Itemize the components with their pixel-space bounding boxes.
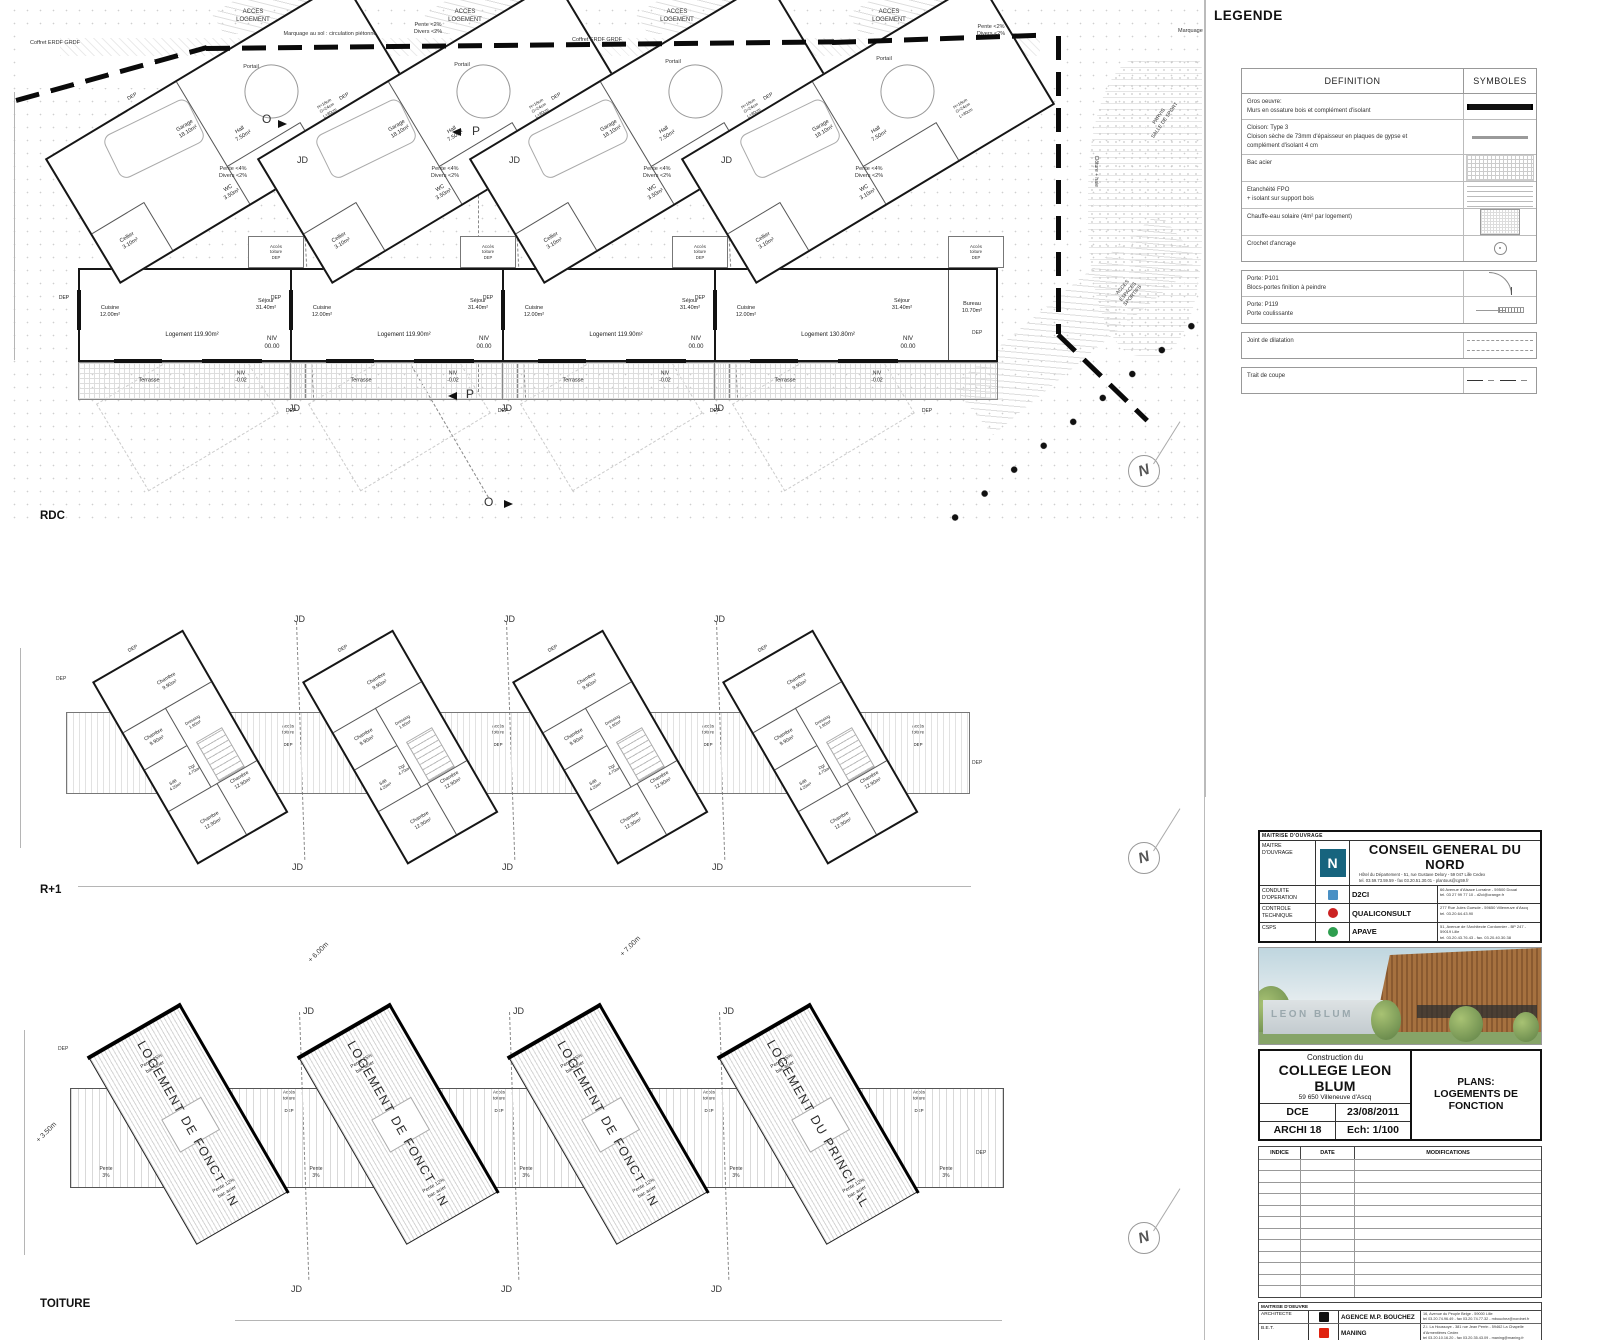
section-arrow-o-top (278, 120, 287, 128)
legend-row-5: Chauffe-eau solaire (4m² par logement) (1242, 208, 1536, 235)
wall-line (304, 202, 356, 234)
firm-address: Z.I. La Houssoye - 381 rue Jean Perrin -… (1421, 1324, 1541, 1340)
portail-4: Portail (876, 56, 892, 63)
jd-r1-top-2: JD (504, 614, 515, 626)
portail-1: Portail (243, 64, 259, 71)
terrasse-label: Terrasse (138, 377, 159, 384)
room-hall: Hall 7.50m² (655, 123, 677, 144)
dep-marker: DEP (126, 91, 138, 102)
rendered-sign-text: LEON BLUM (1271, 1009, 1353, 1020)
qualiconsult-logo (1316, 904, 1350, 922)
date-value: 23/08/2011 (1336, 1104, 1410, 1121)
plans-subject: LOGEMENTS DE FONCTION (1412, 1088, 1540, 1112)
indice-row (1259, 1170, 1541, 1182)
rdc-plan-title: RDC (40, 510, 65, 522)
indice-row (1259, 1193, 1541, 1205)
legend-definition: Joint de dilatation (1242, 333, 1464, 358)
indice-row (1259, 1262, 1541, 1274)
indice-row (1259, 1239, 1541, 1251)
level-marker: NIV 00.00 (264, 336, 279, 352)
jd-toit-bot-1: JD (291, 1284, 302, 1296)
roof-access-porch: Accès toiture DEP (248, 236, 304, 268)
room-cellier: Cellier 3.10m² (542, 231, 564, 252)
legend-symbol-joint-icon (1464, 333, 1536, 358)
window-bar (414, 359, 474, 363)
project-box: Construction du COLLEGE LEON BLUM 59 650… (1258, 1049, 1542, 1141)
jd-rdc-bot-3: JD (713, 403, 724, 415)
acces-logement-1: ACCES LOGEMENT (236, 9, 270, 25)
dep-toit-right: DEP (976, 1150, 986, 1157)
wall-line (935, 122, 959, 160)
wall-line (355, 745, 397, 770)
section-arrow-p-top (452, 128, 461, 136)
jd-r1-bot-3: JD (712, 862, 723, 874)
living-band: Cuisine 12.00m² Logement 119.90m² Séjour… (78, 268, 306, 362)
role-label: ARCHITECTE (1259, 1311, 1309, 1324)
d2ci-logo (1316, 886, 1350, 904)
room-degagement: Dgt 4.70m² (185, 761, 202, 777)
section-o-bot: O (484, 495, 493, 511)
room-chambre: Chambre 12.90m² (409, 810, 433, 832)
role-label: B.E.T. (1259, 1324, 1309, 1340)
north-arrow-r1: N (1128, 842, 1160, 874)
legend-symbol-hook-icon (1464, 236, 1536, 261)
indice-row (1259, 1205, 1541, 1217)
room-sejour: Séjour 31.40m² (892, 298, 912, 312)
jd-toit-top-3: JD (723, 1006, 734, 1018)
dep-marker: DEP (547, 644, 559, 655)
north-needle (1153, 808, 1180, 851)
roof-access-porch: Accès toiture DEP (460, 236, 516, 268)
oeuvre-row-1: ARCHITECTEAGENCE M.P. BOUCHEZ16, Avenue … (1259, 1311, 1541, 1325)
legend-definition: Chauffe-eau solaire (4m² par logement) (1242, 209, 1464, 235)
dim-line-r1-bottom (78, 886, 971, 887)
legend-box-main: DEFINITION SYMBOLES Gros oeuvre: Murs en… (1241, 68, 1537, 262)
legend-header: DEFINITION SYMBOLES (1242, 69, 1536, 94)
wall-line (779, 202, 809, 251)
pente3-1: Pente 3% (99, 1166, 112, 1179)
room-chambre: Chambre 9.90m² (156, 671, 180, 693)
firm-address: 16, Avenue du Peuple Belge - 59000 Lille… (1421, 1311, 1541, 1324)
jd-rdc-top-2: JD (509, 155, 520, 167)
cgn-logo-cell: N (1316, 841, 1350, 885)
legend-row-10: Trait de coupe (1242, 368, 1536, 393)
indice-row (1259, 1228, 1541, 1240)
project-city: 59 650 Villeneuve d'Ascq (1260, 1094, 1410, 1101)
firm-address: 66 Avenue d'Alsace Lorraine - 59500 Doua… (1438, 886, 1540, 904)
toiture-plan-title: TOITURE (40, 1298, 90, 1310)
conseil-general-logo: N (1320, 849, 1346, 877)
room-cuisine: Cuisine 12.00m² (524, 305, 544, 319)
legend-definition: Etanchéité FPO + isolant sur support boi… (1242, 182, 1464, 207)
terrasse-level: NIV -0.02 (235, 371, 246, 384)
section-p-bot: P (466, 387, 474, 403)
terrasse-label: Terrasse (350, 377, 371, 384)
indice-row (1259, 1251, 1541, 1263)
firm-name: D2CI (1350, 886, 1438, 904)
ouvrage-row-2: CONTROLE TECHNIQUEQUALICONSULT277 Rue Ju… (1260, 904, 1540, 923)
window-bar (289, 290, 293, 330)
dep-r1-right: DEP (972, 760, 982, 767)
dep-r1-left: DEP (56, 676, 66, 683)
wall-line (565, 745, 607, 770)
maitre-name: CONSEIL GENERAL DU NORD (1353, 842, 1537, 872)
legend-col-definition: DEFINITION (1242, 69, 1464, 93)
jd-rdc-bot-1: JD (289, 403, 300, 415)
maitre-ouvrage-row: MAITRE D'OUVRAGE N CONSEIL GENERAL DU NO… (1260, 841, 1540, 886)
north-arrow-rdc: N (1128, 455, 1160, 487)
dep-marker: DEP (972, 255, 981, 260)
height-350: + 3.50m (35, 1120, 59, 1144)
legend-symbol-grid-icon (1464, 155, 1536, 181)
logement-area: Logement 130.80m² (801, 332, 855, 340)
room-chambre: Chambre 9.90m² (143, 727, 167, 749)
legend-panel: LEGENDE DEFINITION SYMBOLES Gros oeuvre:… (1205, 0, 1600, 797)
bureau-partition (948, 270, 949, 360)
date-col: DATE (1301, 1147, 1355, 1159)
room-cuisine: Cuisine 12.00m² (100, 305, 120, 319)
agence-m-p-bouchez-logo (1309, 1311, 1339, 1324)
legend-row-9: Joint de dilatation (1242, 333, 1536, 358)
wall-line (426, 783, 456, 835)
jd-r1-bot-2: JD (502, 862, 513, 874)
wall-line (516, 202, 568, 234)
room-chambre: Chambre 9.90m² (576, 671, 600, 693)
pente3-4: Pente 3% (729, 1166, 742, 1179)
cloture-label: Clôture + haie (1092, 156, 1099, 187)
dep-marker: DEP (59, 295, 69, 302)
room-sdb: SdB 4.20m² (166, 777, 183, 793)
pente3-3: Pente 3% (519, 1166, 532, 1179)
maitrise-oeuvre-table: MAITRISE D'OEUVRE ARCHITECTEAGENCE M.P. … (1258, 1302, 1542, 1340)
maitre-address: Hôtel du Département - 51, rue Gustave D… (1359, 872, 1537, 884)
dim-line-rdc-left (14, 92, 15, 360)
legend-symbol-partition-icon (1464, 120, 1536, 154)
parvis-area (1088, 58, 1202, 356)
role-label: CONTROLE TECHNIQUE (1260, 904, 1316, 922)
legend-row-2: Cloison: Type 3 Cloison sèche de 73mm d'… (1242, 119, 1536, 154)
north-arrow-toiture: N (1128, 1222, 1160, 1254)
living-band: Cuisine 12.00m² Logement 119.90m² Séjour… (502, 268, 730, 362)
level-marker: NIV 00.00 (900, 336, 915, 352)
project-identity: Construction du COLLEGE LEON BLUM 59 650… (1260, 1051, 1410, 1104)
firm-name: AGENCE M.P. BOUCHEZ (1339, 1311, 1421, 1324)
jd-toit-bot-2: JD (501, 1284, 512, 1296)
project-line1: Construction du (1260, 1053, 1410, 1062)
indice-row (1259, 1216, 1541, 1228)
room-dressing: Dressing 1.90m² (604, 714, 624, 732)
height-600: + 6.00m (307, 940, 331, 964)
phase-label: DCE (1260, 1104, 1336, 1121)
maitrise-ouvrage-table: MAITRISE D'OUVRAGE MAITRE D'OUVRAGE N CO… (1258, 830, 1542, 943)
dep-marker: DEP (483, 295, 493, 302)
logement-area: Logement 119.90m² (589, 332, 642, 340)
legend-symbol-wall-icon (1464, 94, 1536, 119)
jd-toit-top-1: JD (303, 1006, 314, 1018)
legend-row-6: Crochet d'ancrage (1242, 235, 1536, 261)
legend-table: DEFINITION SYMBOLES Gros oeuvre: Murs en… (1241, 68, 1537, 402)
car-icon (101, 97, 207, 181)
ouvrage-row-1: CONDUITE D'OPERATIOND2CI66 Avenue d'Alsa… (1260, 886, 1540, 905)
legend-definition: Gros oeuvre: Murs en ossature bois et co… (1242, 94, 1464, 119)
window-bar (114, 359, 162, 363)
terrasse-level: NIV -0.02 (447, 371, 458, 384)
coffret-erdf-2: Coffret ERDF GRDF (572, 37, 622, 44)
acces-toiture-label: Accès toiture (270, 244, 282, 255)
dep-marker: DEP (696, 255, 705, 260)
legend-row-8: Porte: P119 Porte coulissante (1242, 296, 1536, 322)
terrace: Terrasse NIV -0.02 DEP (78, 362, 306, 400)
apave-logo (1316, 923, 1350, 941)
indice-row (1259, 1159, 1541, 1171)
project-left: Construction du COLLEGE LEON BLUM 59 650… (1260, 1051, 1412, 1139)
acces-logement-3: ACCES LOGEMENT (660, 9, 694, 25)
room-chambre: Chambre 9.90m² (353, 727, 377, 749)
roof-ridge (87, 1003, 182, 1060)
legend-row-3: Bac acier (1242, 154, 1536, 181)
project-name: COLLEGE LEON BLUM (1260, 1062, 1410, 1094)
pente3-5: Pente 3% (939, 1166, 952, 1179)
legend-box-joint: Joint de dilatation (1241, 332, 1537, 359)
window-bar (202, 359, 262, 363)
jd-toit-top-2: JD (513, 1006, 524, 1018)
legend-symbol-hlines-icon (1464, 182, 1536, 207)
indice-body (1259, 1159, 1541, 1297)
wall-line (92, 202, 144, 234)
dim-line-toit-bottom (235, 1320, 1002, 1321)
acces-toiture-label: Accès toiture (482, 244, 494, 255)
ouvrage-rows: CONDUITE D'OPERATIOND2CI66 Avenue d'Alsa… (1260, 886, 1540, 941)
stair-circle (870, 54, 944, 128)
firm-address: 277 Rue Jules Guesde - 59650 Villeneuve … (1438, 904, 1540, 922)
legend-col-symboles: SYMBOLES (1464, 69, 1536, 93)
dep-marker: DEP (695, 295, 705, 302)
logement-area: Logement 119.90m² (377, 332, 430, 340)
dep-marker: DEP (757, 644, 769, 655)
r1-plan-title: R+1 (40, 884, 61, 896)
room-cellier: Cellier 3.10m² (754, 231, 776, 252)
ouvrage-row-3: CSPSAPAVE51, Avenue de l'Architecte Cord… (1260, 923, 1540, 941)
level-marker: NIV 00.00 (476, 336, 491, 352)
section-o-top: O (262, 112, 271, 128)
dep-marker: DEP (272, 255, 281, 260)
pente-unit-3: Pente <4% Divers <2% (643, 166, 671, 180)
project-rendering: LEON BLUM (1258, 947, 1542, 1045)
window-bar (750, 359, 798, 363)
terrace: Terrasse NIV -0.02 DEP (714, 362, 998, 400)
room-chambre: Chambre 12.90m² (829, 810, 853, 832)
maitrise-ouvrage-header: MAITRISE D'OUVRAGE (1260, 832, 1540, 841)
wall-line (355, 202, 385, 251)
room-dressing: Dressing 1.90m² (394, 714, 414, 732)
role-label: CONDUITE D'OPERATION (1260, 886, 1316, 904)
portail-3: Portail (665, 59, 681, 66)
section-arrow-o-bottom (504, 500, 513, 508)
maitre-role: MAITRE D'OUVRAGE (1260, 841, 1316, 885)
room-sdb: SdB 4.20m² (796, 777, 813, 793)
plans-label: PLANS: (1457, 1077, 1494, 1088)
wall-line (728, 202, 780, 234)
legend-definition: Cloison: Type 3 Cloison sèche de 73mm d'… (1242, 120, 1464, 154)
pente3-2: Pente 3% (309, 1166, 322, 1179)
room-chambre: Chambre 9.90m² (786, 671, 810, 693)
dep-toit-left: DEP (58, 1046, 68, 1053)
pente-site-2: Pente <2% Divers <2% (977, 24, 1005, 38)
plans-cell: PLANS: LOGEMENTS DE FONCTION (1412, 1051, 1540, 1139)
height-700: + 7.00m (619, 934, 643, 958)
roof-access-porch: Accès toiture DEP (948, 236, 1004, 268)
dim-line-toit-left (24, 1030, 25, 1255)
indice-row (1259, 1285, 1541, 1297)
pente-site-1: Pente <2% Divers <2% (414, 22, 442, 36)
legend-row-1: Gros oeuvre: Murs en ossature bois et co… (1242, 94, 1536, 119)
legend-row-4: Etanchéité FPO + isolant sur support boi… (1242, 181, 1536, 207)
portail-2: Portail (454, 62, 470, 69)
room-sdb: SdB 4.20m² (376, 777, 393, 793)
legend-definition: Bac acier (1242, 155, 1464, 181)
room-cuisine: Cuisine 12.00m² (312, 305, 332, 319)
marquage-sol: Marquage au sol : circulation piétonne (284, 31, 377, 38)
wall-line (846, 783, 876, 835)
firm-name: QUALICONSULT (1350, 904, 1438, 922)
title-block: MAITRISE D'OUVRAGE MAITRE D'OUVRAGE N CO… (1258, 830, 1542, 1340)
room-hall: Hall 7.50m² (867, 123, 889, 144)
sheet: Garage 18.10m² Cellier 3.10m² Hall 7.50m… (0, 0, 1600, 1340)
terrace: Terrasse NIV -0.02 DEP (290, 362, 518, 400)
window-bar (626, 359, 686, 363)
rendered-sign-wall: LEON BLUM (1263, 1000, 1383, 1034)
room-dressing: Dressing 1.90m² (184, 714, 204, 732)
indice-col: INDICE (1259, 1147, 1301, 1159)
scale-value: Ech: 1/100 (1336, 1122, 1410, 1139)
doc-number: ARCHI 18 (1260, 1122, 1336, 1139)
window-bar (538, 359, 586, 363)
wall-line (216, 783, 246, 835)
jd-r1-top-1: JD (294, 614, 305, 626)
legend-definition: Porte: P101 Blocs-portes finition à pein… (1242, 271, 1464, 296)
room-degagement: Dgt 4.70m² (815, 761, 832, 777)
dep-marker: DEP (484, 255, 493, 260)
legend-definition: Trait de coupe (1242, 368, 1464, 393)
legend-symbol-panel-icon (1464, 209, 1536, 235)
indice-header: INDICE DATE MODIFICATIONS (1259, 1147, 1541, 1159)
dep-marker: DEP (271, 295, 281, 302)
room-chambre: Chambre 12.90m² (619, 810, 643, 832)
window-bar (713, 290, 717, 330)
dep-marker: DEP (922, 408, 932, 415)
oeuvre-rows: ARCHITECTEAGENCE M.P. BOUCHEZ16, Avenue … (1259, 1311, 1541, 1340)
acces-toiture-label: Accès toiture (694, 244, 706, 255)
room-cuisine: Cuisine 12.00m² (736, 305, 756, 319)
dep-marker: DEP (127, 644, 139, 655)
legend-symbol-sliding-icon (1464, 297, 1536, 322)
jd-rdc-top-3: JD (721, 155, 732, 167)
section-arrow-p-bottom (448, 392, 457, 400)
firm-address: 51, Avenue de l'Architecte Cordonnier - … (1438, 923, 1540, 941)
firm-name: APAVE (1350, 923, 1438, 941)
room-dressing: Dressing 1.90m² (814, 714, 834, 732)
dep-marker: DEP (337, 644, 349, 655)
legend-row-7: Porte: P101 Blocs-portes finition à pein… (1242, 271, 1536, 296)
level-marker: NIV 00.00 (688, 336, 703, 352)
tree-icon (1513, 1012, 1539, 1042)
terrasse-label: Terrasse (562, 377, 583, 384)
tree-icon (1449, 1006, 1483, 1042)
window-bar (326, 359, 374, 363)
terrasse-level: NIV -0.02 (871, 371, 882, 384)
phase-row: DCE 23/08/2011 (1260, 1104, 1410, 1122)
terrasse-level: NIV -0.02 (659, 371, 670, 384)
pente-unit-4: Pente <4% Divers <2% (855, 166, 883, 180)
maning-logo (1309, 1324, 1339, 1340)
tree-icon (1371, 1000, 1401, 1040)
acces-logement-4: ACCES LOGEMENT (872, 9, 906, 25)
room-hall: Hall 7.50m² (231, 123, 253, 144)
wall-line (567, 202, 597, 251)
firm-name: MANING (1339, 1324, 1421, 1340)
legend-title: LEGENDE (1214, 8, 1600, 23)
jd-toit-bot-3: JD (711, 1284, 722, 1296)
dim-line-r1-left (20, 648, 21, 848)
north-needle (1153, 1188, 1180, 1231)
wall-line (636, 783, 666, 835)
legend-symbol-cut-icon (1464, 368, 1536, 393)
window-bar (501, 290, 505, 330)
jd-r1-top-3: JD (714, 614, 725, 626)
doc-row: ARCHI 18 Ech: 1/100 (1260, 1122, 1410, 1139)
terrasse-label: Terrasse (774, 377, 795, 384)
room-cellier: Cellier 3.10m² (330, 231, 352, 252)
oeuvre-row-2: B.E.T.MANINGZ.I. La Houssoye - 381 rue J… (1259, 1324, 1541, 1340)
legend-definition: Porte: P119 Porte coulissante (1242, 297, 1464, 322)
logement-area: Logement 119.90m² (165, 332, 218, 340)
jd-rdc-top-1: JD (297, 155, 308, 167)
roof-access-porch: Accès toiture DEP (672, 236, 728, 268)
room-bureau: Bureau 10.70m² (962, 301, 982, 315)
window-bar (838, 359, 898, 363)
room-degagement: Dgt 4.70m² (395, 761, 412, 777)
wall-line (143, 202, 173, 251)
wall-line (775, 745, 817, 770)
acces-toiture-label: Accès toiture (970, 244, 982, 255)
pente-unit-2: Pente <4% Divers <2% (431, 166, 459, 180)
legend-box-cut: Trait de coupe (1241, 367, 1537, 394)
room-degagement: Dgt 4.70m² (605, 761, 622, 777)
jd-r1-bot-1: JD (292, 862, 303, 874)
room-chambre: Chambre 9.90m² (563, 727, 587, 749)
room-chambre: Chambre 12.90m² (199, 810, 223, 832)
room-chambre: Chambre 9.90m² (773, 727, 797, 749)
dep-rdc-extra-1: DEP (972, 330, 982, 337)
pente-unit-1: Pente <4% Divers <2% (219, 166, 247, 180)
window-bar (77, 290, 81, 330)
site-boundary-seg4 (1056, 36, 1061, 334)
room-cellier: Cellier 3.10m² (118, 231, 140, 252)
coffret-erdf-1: Coffret ERDF GRDF (30, 40, 80, 47)
wall-line (145, 745, 187, 770)
legend-definition: Crochet d'ancrage (1242, 236, 1464, 261)
indice-table: INDICE DATE MODIFICATIONS (1258, 1146, 1542, 1298)
indice-row (1259, 1274, 1541, 1286)
section-p-top: P (472, 124, 480, 140)
room-chambre: Chambre 9.90m² (366, 671, 390, 693)
living-band: Cuisine 12.00m² Logement 119.90m² Séjour… (290, 268, 518, 362)
maitrise-oeuvre-header: MAITRISE D'OEUVRE (1259, 1303, 1541, 1311)
jd-rdc-bot-2: JD (501, 403, 512, 415)
stair-note: H=18cm G=24cm L=80cm (952, 97, 974, 119)
role-label: CSPS (1260, 923, 1316, 941)
legend-symbol-door-icon (1464, 271, 1536, 296)
